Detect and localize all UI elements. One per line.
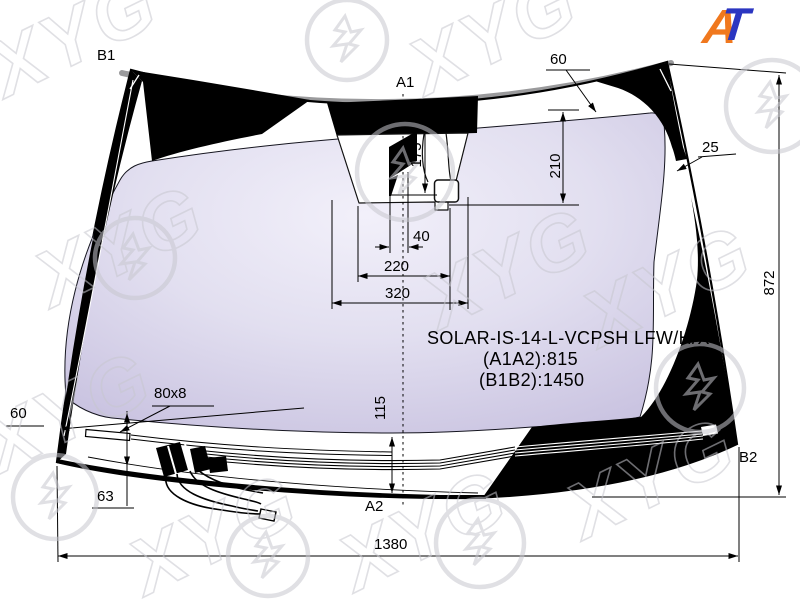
at-logo: AT: [700, 0, 752, 55]
dim-glass-height-label: 872: [762, 265, 778, 301]
part-number: SOLAR-IS-14-L-VCPSH LFW/H/X: [427, 330, 710, 346]
part-dim-a1a2: (A1A2):815: [483, 351, 578, 367]
dim-sensor-total-height-label: 210: [548, 151, 564, 181]
part-dim-b1b2: (B1B2):1450: [479, 372, 584, 388]
dim-camera-width-label: 40: [413, 229, 430, 245]
dim-lower-band-height-label: 115: [373, 393, 389, 423]
dim-top-offset-label: 60: [550, 52, 567, 68]
point-label-a1: A1: [396, 75, 414, 91]
dim-right-margin-label: 25: [702, 140, 719, 156]
point-label-b2: B2: [739, 450, 757, 466]
windshield-diagram: XYG XYG XYG XYG XYG XYG XYG XYG XYG B1 A…: [0, 0, 800, 600]
dim-sensor-height-label: 175: [409, 140, 425, 170]
dim-left-margin-label: 60: [10, 406, 27, 422]
point-label-a2: A2: [365, 499, 383, 515]
dim-bottom-width-label: 1380: [374, 537, 407, 553]
dim-pad-offset-label: 63: [97, 489, 114, 505]
point-label-b1: B1: [97, 48, 115, 64]
dim-bracket-width-label: 220: [384, 259, 409, 275]
connector-block-3: [208, 456, 228, 473]
dim-frit-width-label: 320: [385, 286, 410, 302]
at-logo-letter-t: T: [718, 0, 752, 50]
dim-pad-size-label: 80x8: [154, 386, 187, 402]
